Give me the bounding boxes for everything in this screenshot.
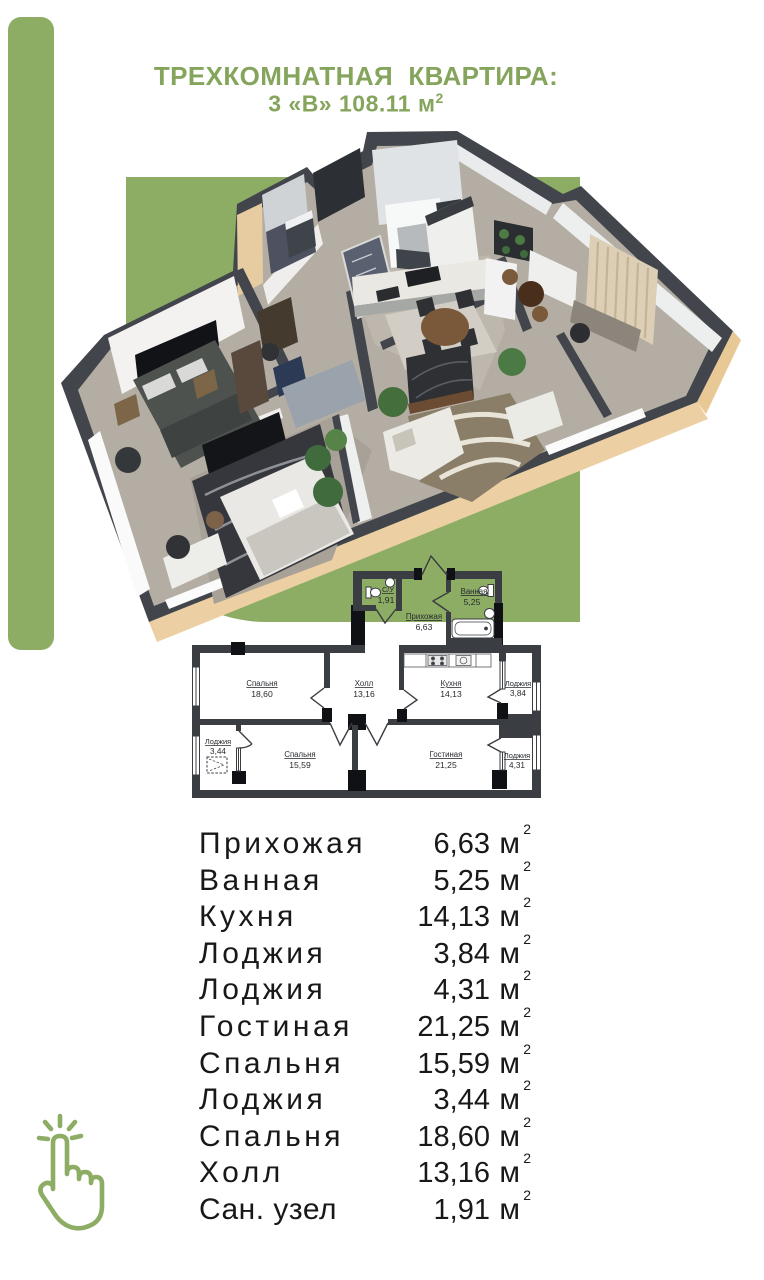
svg-text:Прихожая: Прихожая [406, 612, 442, 621]
svg-text:6,63: 6,63 [416, 622, 433, 632]
svg-text:Кухня: Кухня [441, 679, 462, 688]
svg-text:15,59: 15,59 [289, 760, 311, 770]
svg-text:Лоджия: Лоджия [505, 679, 531, 688]
svg-text:13,16: 13,16 [353, 689, 375, 699]
svg-text:18,60: 18,60 [251, 689, 273, 699]
svg-text:4,31: 4,31 [509, 761, 525, 770]
svg-text:Холл: Холл [355, 679, 374, 688]
svg-text:Лоджия: Лоджия [504, 751, 530, 760]
svg-text:Ванная: Ванная [461, 587, 488, 596]
svg-text:1,91: 1,91 [378, 595, 395, 605]
svg-text:21,25: 21,25 [435, 760, 457, 770]
svg-text:3,44: 3,44 [210, 747, 226, 756]
svg-text:3,84: 3,84 [510, 689, 526, 698]
svg-text:14,13: 14,13 [440, 689, 462, 699]
svg-text:С/У: С/У [382, 585, 394, 594]
svg-text:Спальня: Спальня [284, 750, 315, 759]
svg-text:Спальня: Спальня [246, 679, 277, 688]
svg-text:5,25: 5,25 [464, 597, 481, 607]
svg-text:Лоджия: Лоджия [205, 737, 231, 746]
svg-text:Гостиная: Гостиная [430, 750, 463, 759]
